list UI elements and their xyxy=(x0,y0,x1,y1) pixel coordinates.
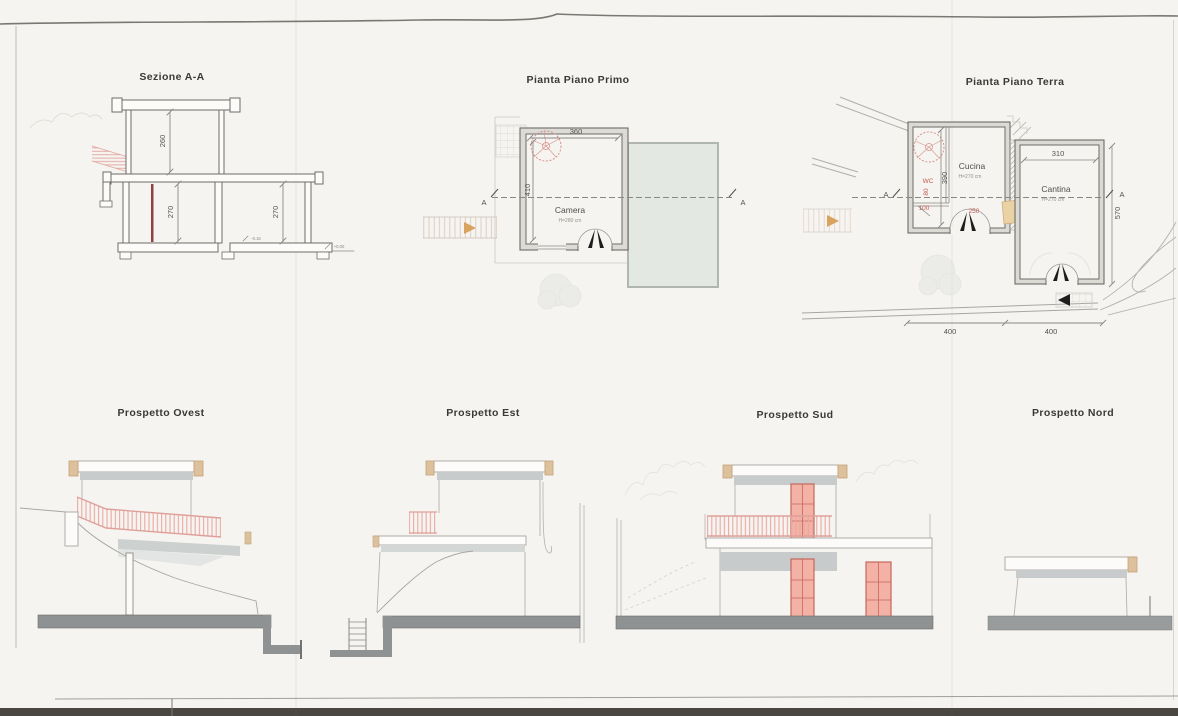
dim-570: 570 xyxy=(1113,207,1122,220)
lower-door-center xyxy=(791,559,814,617)
roof-cap-right xyxy=(545,461,553,475)
terrain-slope xyxy=(78,523,258,614)
stair-railing xyxy=(409,512,437,534)
ground-band xyxy=(988,616,1172,630)
terrain-sketch xyxy=(30,113,102,128)
dim-270-right: 270 xyxy=(271,206,280,219)
base-slab-left xyxy=(118,243,218,252)
upper-wall-right xyxy=(219,110,224,174)
scan-top-edge xyxy=(0,14,1178,24)
primo-title: Pianta Piano Primo xyxy=(527,74,630,86)
stair-railing-hatch xyxy=(92,146,128,172)
drawing-prospetto-ovest: Prospetto Ovest xyxy=(20,407,301,659)
road-line xyxy=(802,303,1098,313)
section-marker-a-right: A xyxy=(1119,190,1124,199)
terrain-line xyxy=(20,508,66,512)
roof-slab xyxy=(434,461,545,472)
dim-100: 100 xyxy=(919,205,930,212)
lower-wall-right xyxy=(305,182,311,243)
lower-recess-band xyxy=(720,552,837,571)
level-right: +0.00 xyxy=(334,244,345,249)
roof-slab xyxy=(1005,557,1136,570)
dim-400-right: 400 xyxy=(1045,327,1058,336)
spiral-stair-symbol xyxy=(914,132,944,162)
dim-250: 250 xyxy=(969,208,980,215)
lower-roof-cap xyxy=(373,536,379,547)
balcony-railing xyxy=(707,516,832,537)
room-label-cantina: Cantina xyxy=(1041,184,1071,194)
ground-band xyxy=(616,616,933,629)
lower-wall-left xyxy=(123,182,129,243)
dim-80: 80 xyxy=(923,188,930,196)
ground-step-vertical xyxy=(263,615,271,654)
dim-360: 360 xyxy=(570,127,583,136)
hillside-contours xyxy=(1100,222,1176,315)
drawing-prospetto-sud: Prospetto Sud xyxy=(616,409,933,629)
section-marker-a-right: A xyxy=(740,198,745,207)
cantina-wall-outer xyxy=(1015,140,1104,284)
lower-wall-mid xyxy=(215,182,222,243)
dim-260: 260 xyxy=(158,135,167,148)
roof-cap-right xyxy=(194,461,203,476)
room-label-cucina: Cucina xyxy=(959,161,986,171)
drawing-canvas: Sezione A-A 260 270 270 -0.15 +0.00 Pian… xyxy=(0,0,1178,716)
drawing-pianta-piano-primo: Pianta Piano Primo 360 410 Camera H=280 … xyxy=(423,74,746,309)
drawing-prospetto-nord: Prospetto Nord xyxy=(988,407,1172,630)
wall-outer xyxy=(520,128,628,250)
dim-410: 410 xyxy=(523,184,532,197)
terrain-dashes xyxy=(625,562,706,610)
exterior-stair-path xyxy=(423,217,497,238)
dimension-lines xyxy=(904,320,1106,326)
roof-slab-section xyxy=(122,100,230,110)
scan-bottom-band xyxy=(0,708,1178,716)
pillar xyxy=(65,512,78,546)
drawing-prospetto-est: Prospetto Est xyxy=(330,407,621,657)
balcony-slab xyxy=(706,538,932,548)
fascia-band xyxy=(80,472,193,480)
roof-slab xyxy=(78,461,194,472)
room-height-cucina: H=270 cm xyxy=(959,174,982,180)
drawing-sezione-aa: Sezione A-A 260 270 270 -0.15 +0.00 xyxy=(30,71,354,259)
spiral-stair-symbol xyxy=(531,131,561,161)
roof-cap-left xyxy=(426,461,434,475)
dim-270-left: 270 xyxy=(166,206,175,219)
dimension-lines xyxy=(527,135,621,243)
wc-partition xyxy=(913,127,949,216)
wc-label: WC xyxy=(923,178,934,185)
sezione-title: Sezione A-A xyxy=(139,71,204,83)
support-column xyxy=(126,553,133,615)
room-label-camera: Camera xyxy=(555,205,586,215)
ground-step-horizontal xyxy=(271,645,301,654)
ovest-title: Prospetto Ovest xyxy=(117,407,204,419)
wall-inner xyxy=(526,134,622,244)
roof-slab xyxy=(732,465,838,476)
retaining-walls xyxy=(812,97,909,177)
boundary-walls xyxy=(580,503,621,643)
room-height-camera: H=280 cm xyxy=(559,218,582,224)
terrace xyxy=(628,143,718,287)
wall-infill xyxy=(1018,143,1102,282)
section-marker-a-left: A xyxy=(883,190,888,199)
ground-step-horizontal xyxy=(330,650,392,657)
fascia-band xyxy=(437,472,543,480)
roof-cap-left xyxy=(69,461,78,476)
fascia-band xyxy=(734,476,837,485)
dim-400-left: 400 xyxy=(944,327,957,336)
roof-cap-right xyxy=(838,465,847,478)
lower-roof-slab xyxy=(374,536,526,545)
nord-title: Prospetto Nord xyxy=(1032,407,1114,419)
post-tan xyxy=(245,532,251,544)
fascia-band xyxy=(1016,570,1127,578)
sud-title: Prospetto Sud xyxy=(757,409,834,421)
lower-fascia-band xyxy=(381,545,525,552)
tree-sketch xyxy=(538,274,581,309)
section-marker-a-left: A xyxy=(481,198,486,207)
dim-390: 390 xyxy=(940,172,949,185)
section-door-red xyxy=(151,184,154,242)
dim-310: 310 xyxy=(1052,149,1065,158)
drawing-pianta-piano-terra: Pianta Piano Terra xyxy=(802,76,1176,336)
est-title: Prospetto Est xyxy=(446,407,520,419)
downspout xyxy=(543,482,552,553)
terrain-slope xyxy=(377,551,473,613)
upper-wall-left xyxy=(126,110,131,174)
wall-infill xyxy=(523,131,625,247)
floor-slab-section xyxy=(103,174,323,182)
scan-bottom-line xyxy=(55,696,1178,699)
wall-hatch-top xyxy=(1007,116,1031,139)
ground-band xyxy=(38,615,271,628)
base-slab-right xyxy=(230,243,332,252)
lower-door-right xyxy=(866,562,891,617)
terra-title: Pianta Piano Terra xyxy=(966,76,1065,88)
ladder xyxy=(349,618,366,651)
level-left: -0.15 xyxy=(251,236,261,241)
roof-cap-left xyxy=(723,465,732,478)
scanned-sheet: Sezione A-A 260 270 270 -0.15 +0.00 Pian… xyxy=(0,0,1178,716)
ground-band xyxy=(383,616,580,628)
roof-cap-right xyxy=(1128,557,1137,572)
cantina-wall-inner xyxy=(1020,145,1099,279)
tree-sketch xyxy=(919,255,961,295)
